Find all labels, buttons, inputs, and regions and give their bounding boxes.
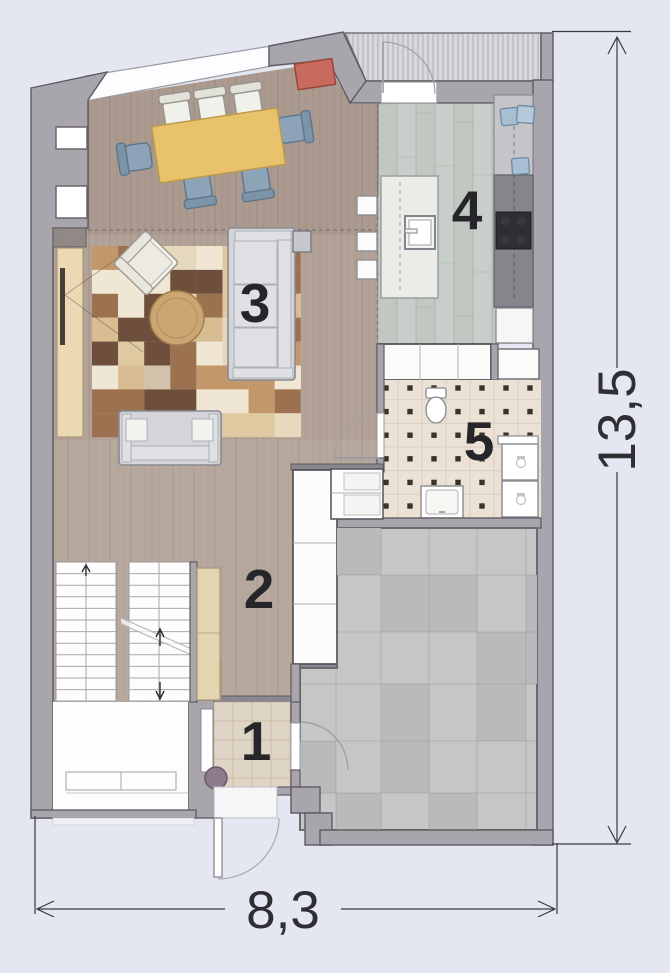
svg-text:1: 1 — [241, 710, 272, 772]
svg-text:3: 3 — [240, 272, 271, 334]
svg-text:2: 2 — [244, 558, 275, 620]
svg-text:13,5: 13,5 — [588, 368, 647, 471]
svg-text:5: 5 — [464, 410, 495, 472]
svg-text:8,3: 8,3 — [246, 881, 320, 940]
svg-text:4: 4 — [452, 179, 483, 241]
